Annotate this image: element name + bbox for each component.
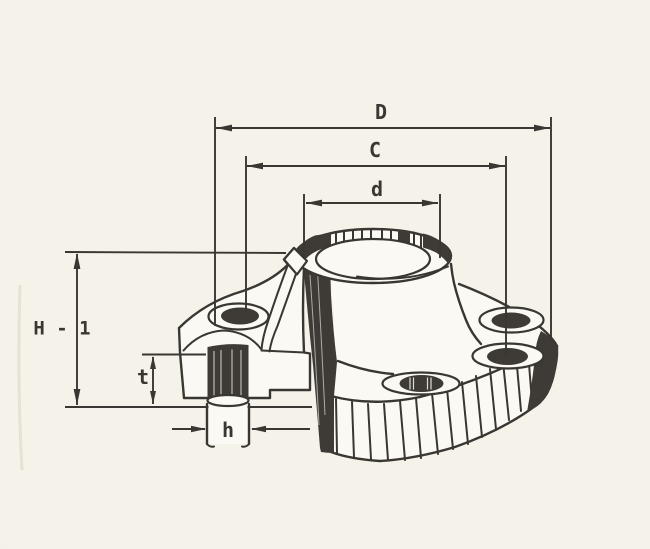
flange-drawing: [0, 0, 650, 549]
dim-label-C: C: [369, 140, 381, 160]
bolt-hole-upper-right: [480, 308, 544, 333]
bolt-hole-bottom-opening: [208, 395, 249, 406]
flange-body: [179, 229, 558, 461]
bore-opening: [316, 239, 430, 279]
dim-label-d: d: [371, 179, 383, 199]
bolt-hole-front: [383, 373, 460, 395]
bolt-hole-mid-right: [473, 344, 544, 369]
cutaway-wedge: [179, 248, 310, 400]
scan-streak: [19, 285, 22, 470]
dim-label-H1: H - 1: [33, 320, 90, 339]
dim-label-D: D: [375, 102, 387, 122]
dim-label-h: h: [222, 420, 234, 440]
dim-label-t: t: [137, 367, 149, 387]
flange-dimension-diagram: D C d H - 1 t h: [0, 0, 650, 549]
